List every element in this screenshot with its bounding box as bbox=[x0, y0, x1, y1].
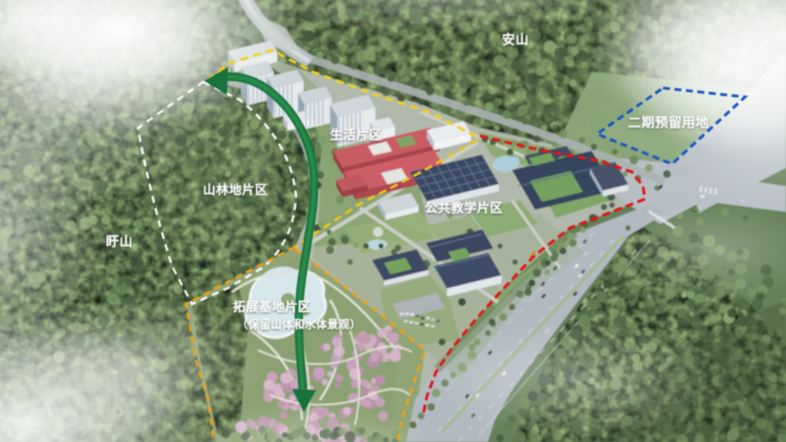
svg-text:拓展基地片区: 拓展基地片区 bbox=[233, 299, 311, 314]
svg-text:二期预留用地: 二期预留用地 bbox=[628, 115, 709, 130]
svg-text:山林地片区: 山林地片区 bbox=[203, 182, 268, 197]
svg-text:（保留山体和水体景观）: （保留山体和水体景观） bbox=[237, 317, 361, 331]
svg-text:盱山: 盱山 bbox=[106, 234, 133, 249]
svg-text:安山: 安山 bbox=[502, 32, 529, 47]
svg-text:生活片区: 生活片区 bbox=[330, 127, 382, 142]
svg-text:公共教学片区: 公共教学片区 bbox=[425, 200, 503, 215]
